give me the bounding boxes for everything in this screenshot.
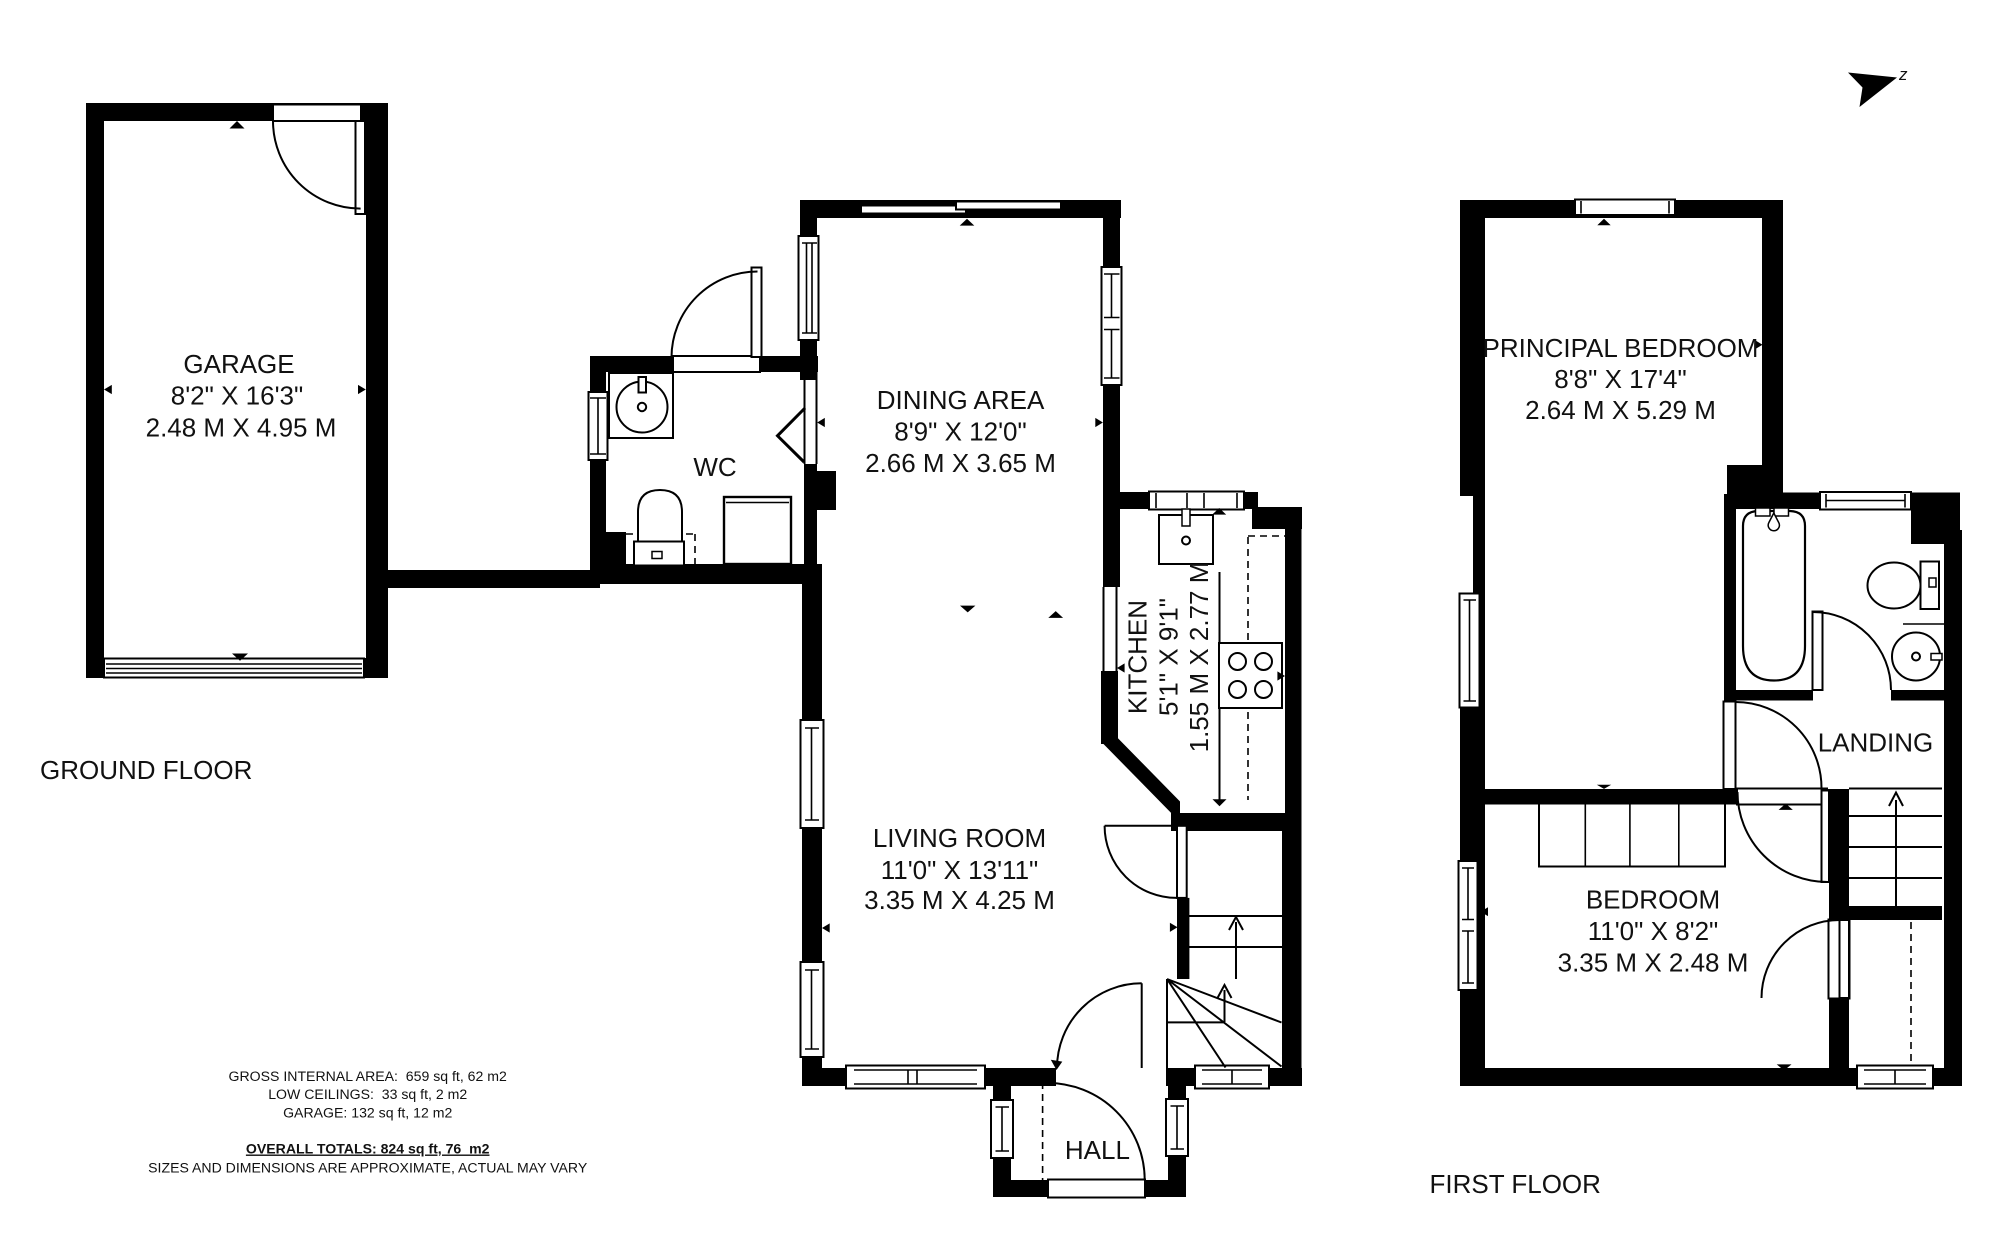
svg-text:8'2" X 16'3": 8'2" X 16'3" xyxy=(171,381,303,411)
svg-text:5'1" X 9'1": 5'1" X 9'1" xyxy=(1154,598,1184,716)
svg-text:WC: WC xyxy=(693,452,736,482)
svg-text:3.35 M X 2.48 M: 3.35 M X 2.48 M xyxy=(1558,948,1749,978)
svg-text:GROUND FLOOR: GROUND FLOOR xyxy=(40,755,252,785)
svg-text:OVERALL TOTALS: 824 sq ft, 76: OVERALL TOTALS: 824 sq ft, 76 m2 xyxy=(246,1141,490,1157)
svg-text:PRINCIPAL BEDROOM: PRINCIPAL BEDROOM xyxy=(1483,333,1759,363)
svg-text:11'0" X 8'2": 11'0" X 8'2" xyxy=(1588,916,1719,946)
svg-text:GARAGE: 132 sq ft, 12 m2: GARAGE: 132 sq ft, 12 m2 xyxy=(283,1104,452,1120)
svg-text:KITCHEN: KITCHEN xyxy=(1123,600,1153,714)
svg-text:11'0" X 13'11": 11'0" X 13'11" xyxy=(881,855,1039,885)
svg-text:FIRST FLOOR: FIRST FLOOR xyxy=(1430,1169,1601,1199)
svg-text:LIVING ROOM: LIVING ROOM xyxy=(873,823,1046,853)
svg-text:LANDING: LANDING xyxy=(1818,728,1934,758)
svg-text:1.55 M X 2.77 M: 1.55 M X 2.77 M xyxy=(1184,562,1214,753)
svg-text:2.66 M X 3.65 M: 2.66 M X 3.65 M xyxy=(865,448,1056,478)
svg-text:DINING AREA: DINING AREA xyxy=(877,385,1045,415)
svg-text:SIZES AND DIMENSIONS ARE APPRO: SIZES AND DIMENSIONS ARE APPROXIMATE, AC… xyxy=(148,1159,588,1175)
svg-text:3.35 M X 4.25 M: 3.35 M X 4.25 M xyxy=(864,885,1055,915)
svg-text:GROSS INTERNAL AREA: 659 sq f: GROSS INTERNAL AREA: 659 sq ft, 62 m2 xyxy=(229,1068,507,1084)
svg-text:8'8" X 17'4": 8'8" X 17'4" xyxy=(1554,364,1686,394)
svg-text:GARAGE: GARAGE xyxy=(183,349,294,379)
svg-text:z: z xyxy=(1898,65,1908,84)
svg-text:2.64 M X 5.29 M: 2.64 M X 5.29 M xyxy=(1525,395,1716,425)
svg-text:BEDROOM: BEDROOM xyxy=(1586,885,1720,915)
svg-text:LOW CEILINGS: 33 sq ft, 2 m2: LOW CEILINGS: 33 sq ft, 2 m2 xyxy=(268,1086,467,1102)
svg-text:2.48 M X 4.95 M: 2.48 M X 4.95 M xyxy=(146,413,337,443)
svg-text:8'9" X 12'0": 8'9" X 12'0" xyxy=(894,417,1026,447)
svg-text:HALL: HALL xyxy=(1065,1135,1130,1165)
